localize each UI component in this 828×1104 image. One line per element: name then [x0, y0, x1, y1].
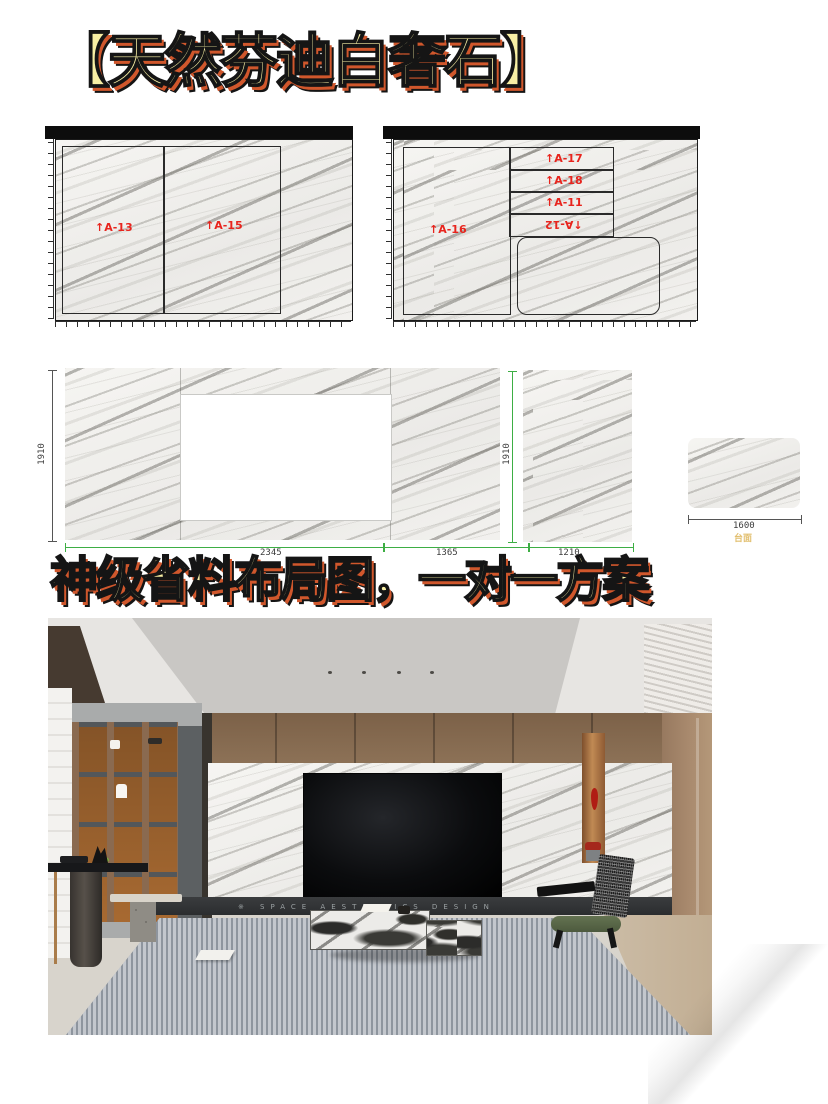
tv-screen [303, 773, 502, 900]
desk-cylinder-leg [70, 872, 102, 967]
dim-height-right: 1910 [502, 443, 512, 465]
chair-leg [553, 930, 563, 949]
slab2-left-ruler [386, 139, 392, 319]
shelf-sculpture [116, 784, 127, 798]
cut-outline-rounded [517, 237, 660, 315]
cut-label-a15: ↑A-15 [205, 219, 243, 232]
dim-height-left: 1910 [37, 443, 47, 465]
table-bonsai [398, 906, 410, 914]
curtain [48, 688, 72, 958]
slab2-bottom-ruler [393, 321, 696, 327]
shelf-sculpture [110, 740, 120, 749]
chair-backrest [591, 854, 635, 918]
bench-stone-leg [130, 902, 156, 942]
tea-set [60, 856, 88, 863]
ceiling-spotlight [430, 671, 434, 674]
chair-side-tray [537, 881, 596, 897]
dim-width-top: 1600 [733, 521, 755, 531]
shelf-object [148, 738, 162, 744]
magazine-on-rug [195, 950, 235, 960]
poster-subtitle: 神级省料布局图，一对一方案 [50, 556, 648, 604]
tv-cutout [180, 394, 392, 521]
dim-line-height-left [48, 370, 57, 542]
table-slab-left [310, 910, 430, 950]
ac-grille [644, 624, 712, 720]
slab1-left-ruler [48, 139, 54, 319]
cut-label-a11: ↑A-11 [545, 196, 583, 209]
ceiling-spotlight [328, 671, 332, 674]
cut-label-a17: ↑A-17 [545, 152, 583, 165]
dim-line-width-side [528, 543, 634, 552]
poster-page: 【天然芬迪白奢石】 ↑A-13 ↑A-15 ↑A-16 ↑A-17 ↑A-18 … [0, 0, 828, 1104]
plinth-mark: ※ [238, 903, 244, 911]
bench-top [110, 894, 182, 902]
cut-label-a13: ↑A-13 [95, 221, 133, 234]
tv-wall-panel [65, 368, 500, 540]
cut-label-a12: ↑A-12 [545, 218, 583, 231]
desk-top [48, 863, 148, 872]
poster-title: 【天然芬迪白奢石】 [52, 32, 556, 90]
interior-photo: ※ SPACE AESTHETICS DESIGN [48, 618, 712, 1035]
desk-bronze-leg [54, 872, 57, 964]
countertop-piece [688, 438, 800, 508]
slab2-top-edge [383, 126, 700, 139]
cut-label-a18: ↑A-18 [545, 174, 583, 187]
ceiling-spotlight [397, 671, 401, 674]
slab1-bottom-ruler [55, 321, 351, 327]
armchair [537, 856, 633, 948]
slab-sheet-1: ↑A-13 ↑A-15 [45, 126, 353, 332]
countertop-label: 台面 [734, 531, 752, 544]
corner-shadow [648, 944, 828, 1104]
cut-label-a16: ↑A-16 [429, 223, 467, 236]
side-panel [523, 370, 632, 542]
dim-line-width-main [65, 543, 385, 552]
ceiling-spotlight [362, 671, 366, 674]
wood-band [198, 713, 678, 765]
table-slab-right [426, 920, 482, 956]
slab1-top-edge [45, 126, 353, 139]
slab-sheet-2: ↑A-16 ↑A-17 ↑A-18 ↑A-11 ↑A-12 [383, 126, 700, 332]
open-book [360, 904, 392, 912]
coffee-table [310, 904, 480, 974]
